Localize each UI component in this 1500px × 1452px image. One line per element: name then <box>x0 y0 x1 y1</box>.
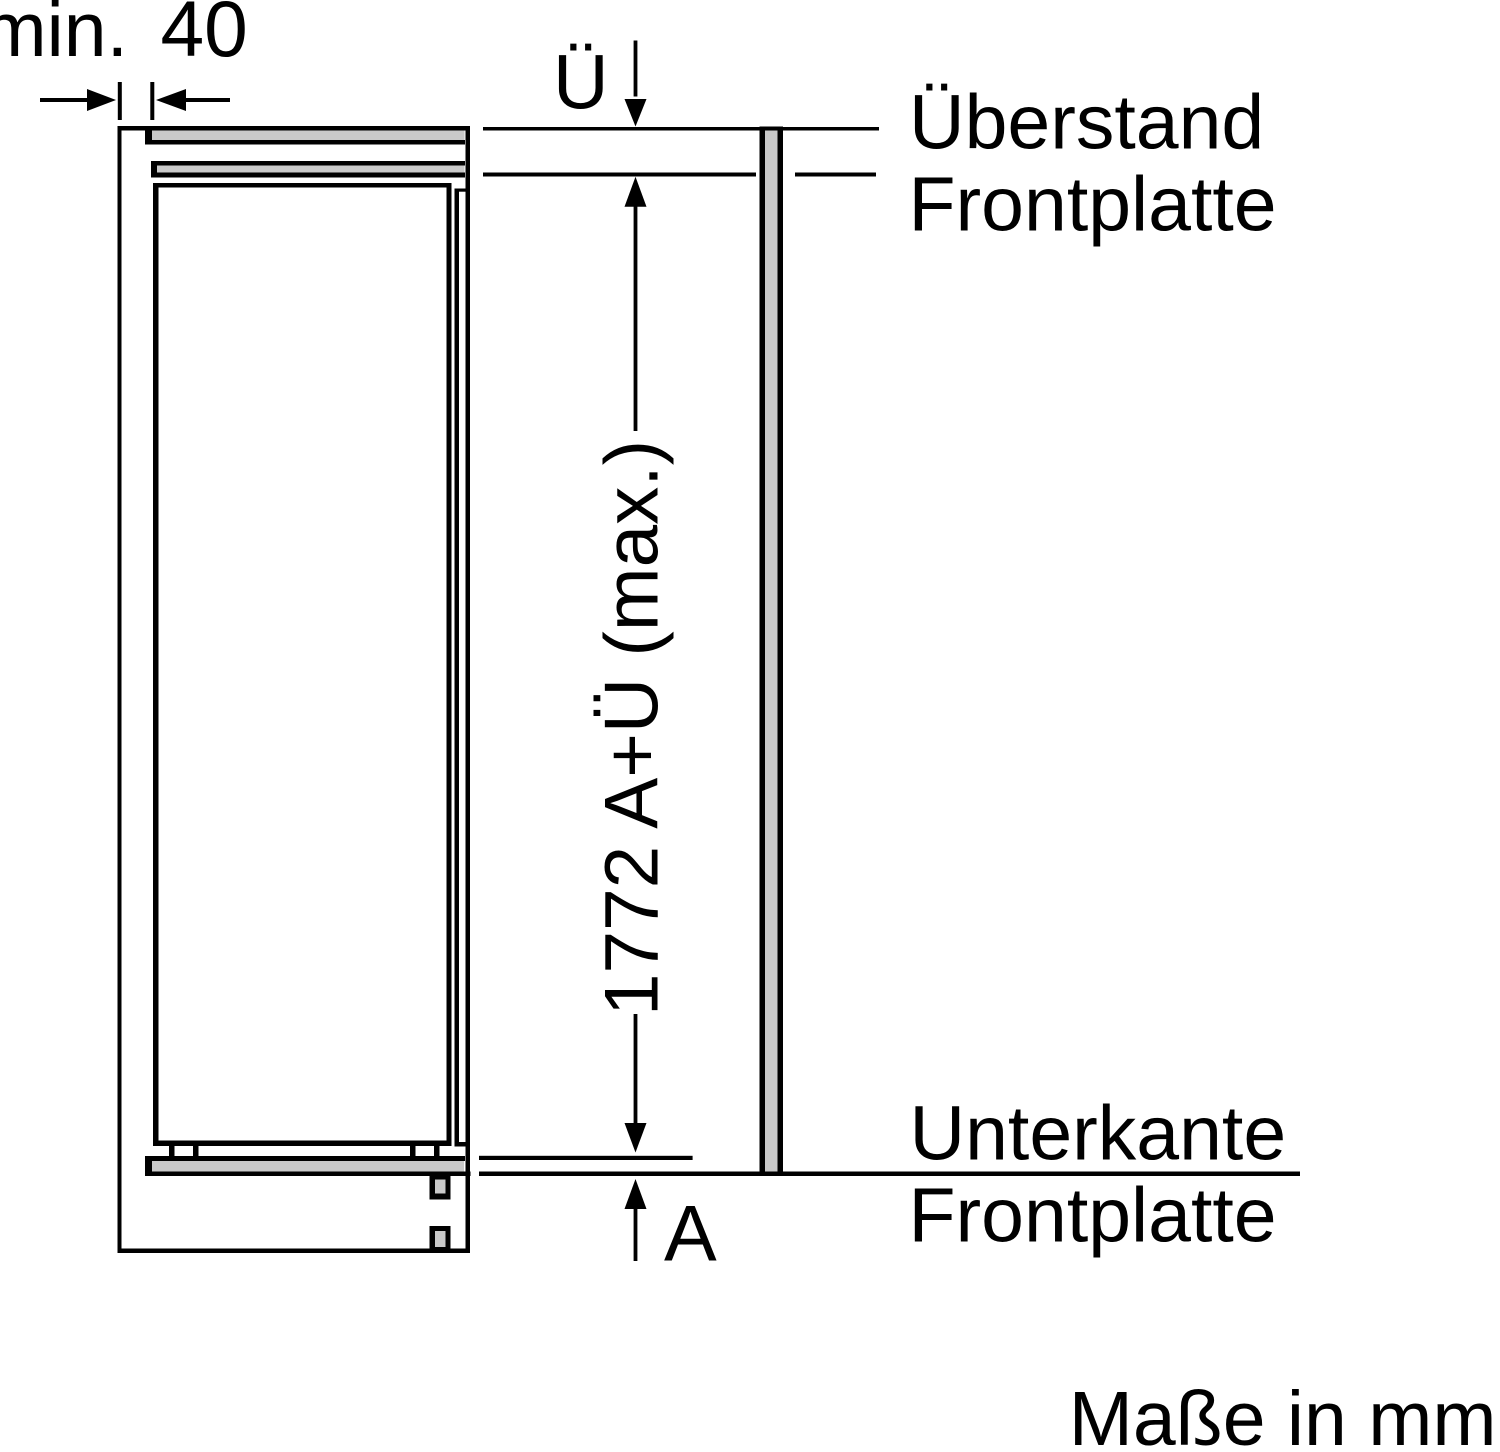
svg-text:Maße in mm: Maße in mm <box>1069 1376 1497 1452</box>
svg-text:1772 A+Ü (max.): 1772 A+Ü (max.) <box>590 440 675 1016</box>
svg-text:40: 40 <box>161 0 248 73</box>
svg-text:Unterkante: Unterkante <box>910 1091 1287 1177</box>
svg-text:min.: min. <box>0 0 128 73</box>
svg-text:Frontplatte: Frontplatte <box>909 1172 1277 1258</box>
svg-text:Überstand: Überstand <box>909 80 1264 166</box>
svg-text:Ü: Ü <box>553 40 609 126</box>
svg-text:A: A <box>664 1189 717 1278</box>
svg-text:Frontplatte: Frontplatte <box>909 161 1277 247</box>
